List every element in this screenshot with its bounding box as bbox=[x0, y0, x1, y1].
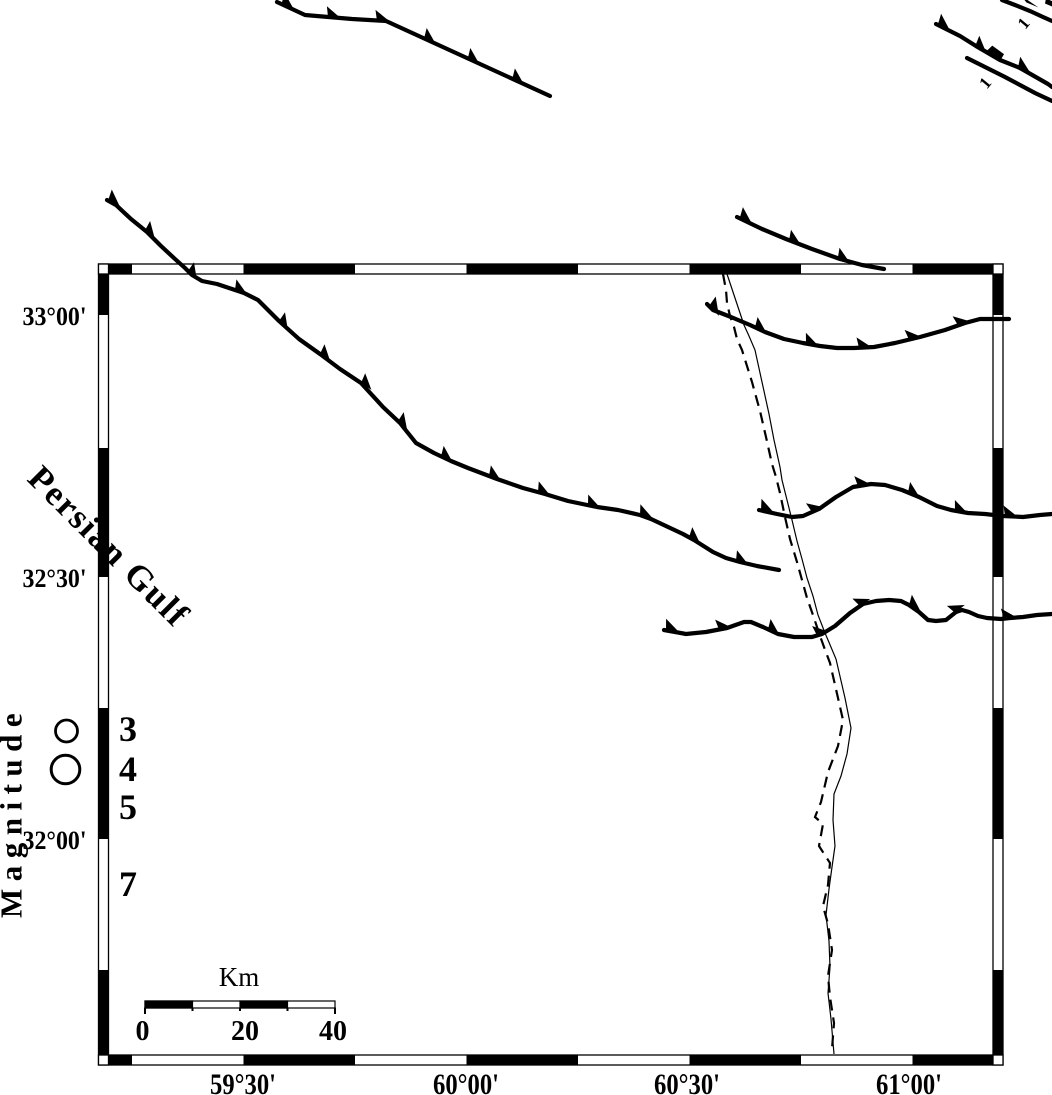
svg-text:0: 0 bbox=[136, 1016, 150, 1047]
svg-text:60°30': 60°30' bbox=[654, 1068, 720, 1095]
svg-text:1: 1 bbox=[975, 74, 995, 93]
svg-text:7: 7 bbox=[119, 864, 137, 904]
svg-text:1: 1 bbox=[1014, 14, 1034, 33]
svg-text:5: 5 bbox=[119, 787, 137, 827]
svg-text:61°00': 61°00' bbox=[876, 1068, 942, 1095]
svg-text:32°30': 32°30' bbox=[23, 564, 87, 593]
svg-text:Magnitude: Magnitude bbox=[0, 706, 29, 918]
svg-text:4: 4 bbox=[119, 749, 137, 789]
svg-text:59°30': 59°30' bbox=[210, 1068, 276, 1095]
svg-text:33°00': 33°00' bbox=[23, 302, 87, 331]
svg-text:3: 3 bbox=[119, 709, 137, 749]
svg-text:32°00': 32°00' bbox=[23, 826, 87, 855]
svg-text:60°00': 60°00' bbox=[433, 1068, 499, 1095]
svg-text:Km: Km bbox=[219, 962, 260, 992]
svg-text:20: 20 bbox=[231, 1016, 259, 1047]
svg-text:40: 40 bbox=[319, 1016, 347, 1047]
